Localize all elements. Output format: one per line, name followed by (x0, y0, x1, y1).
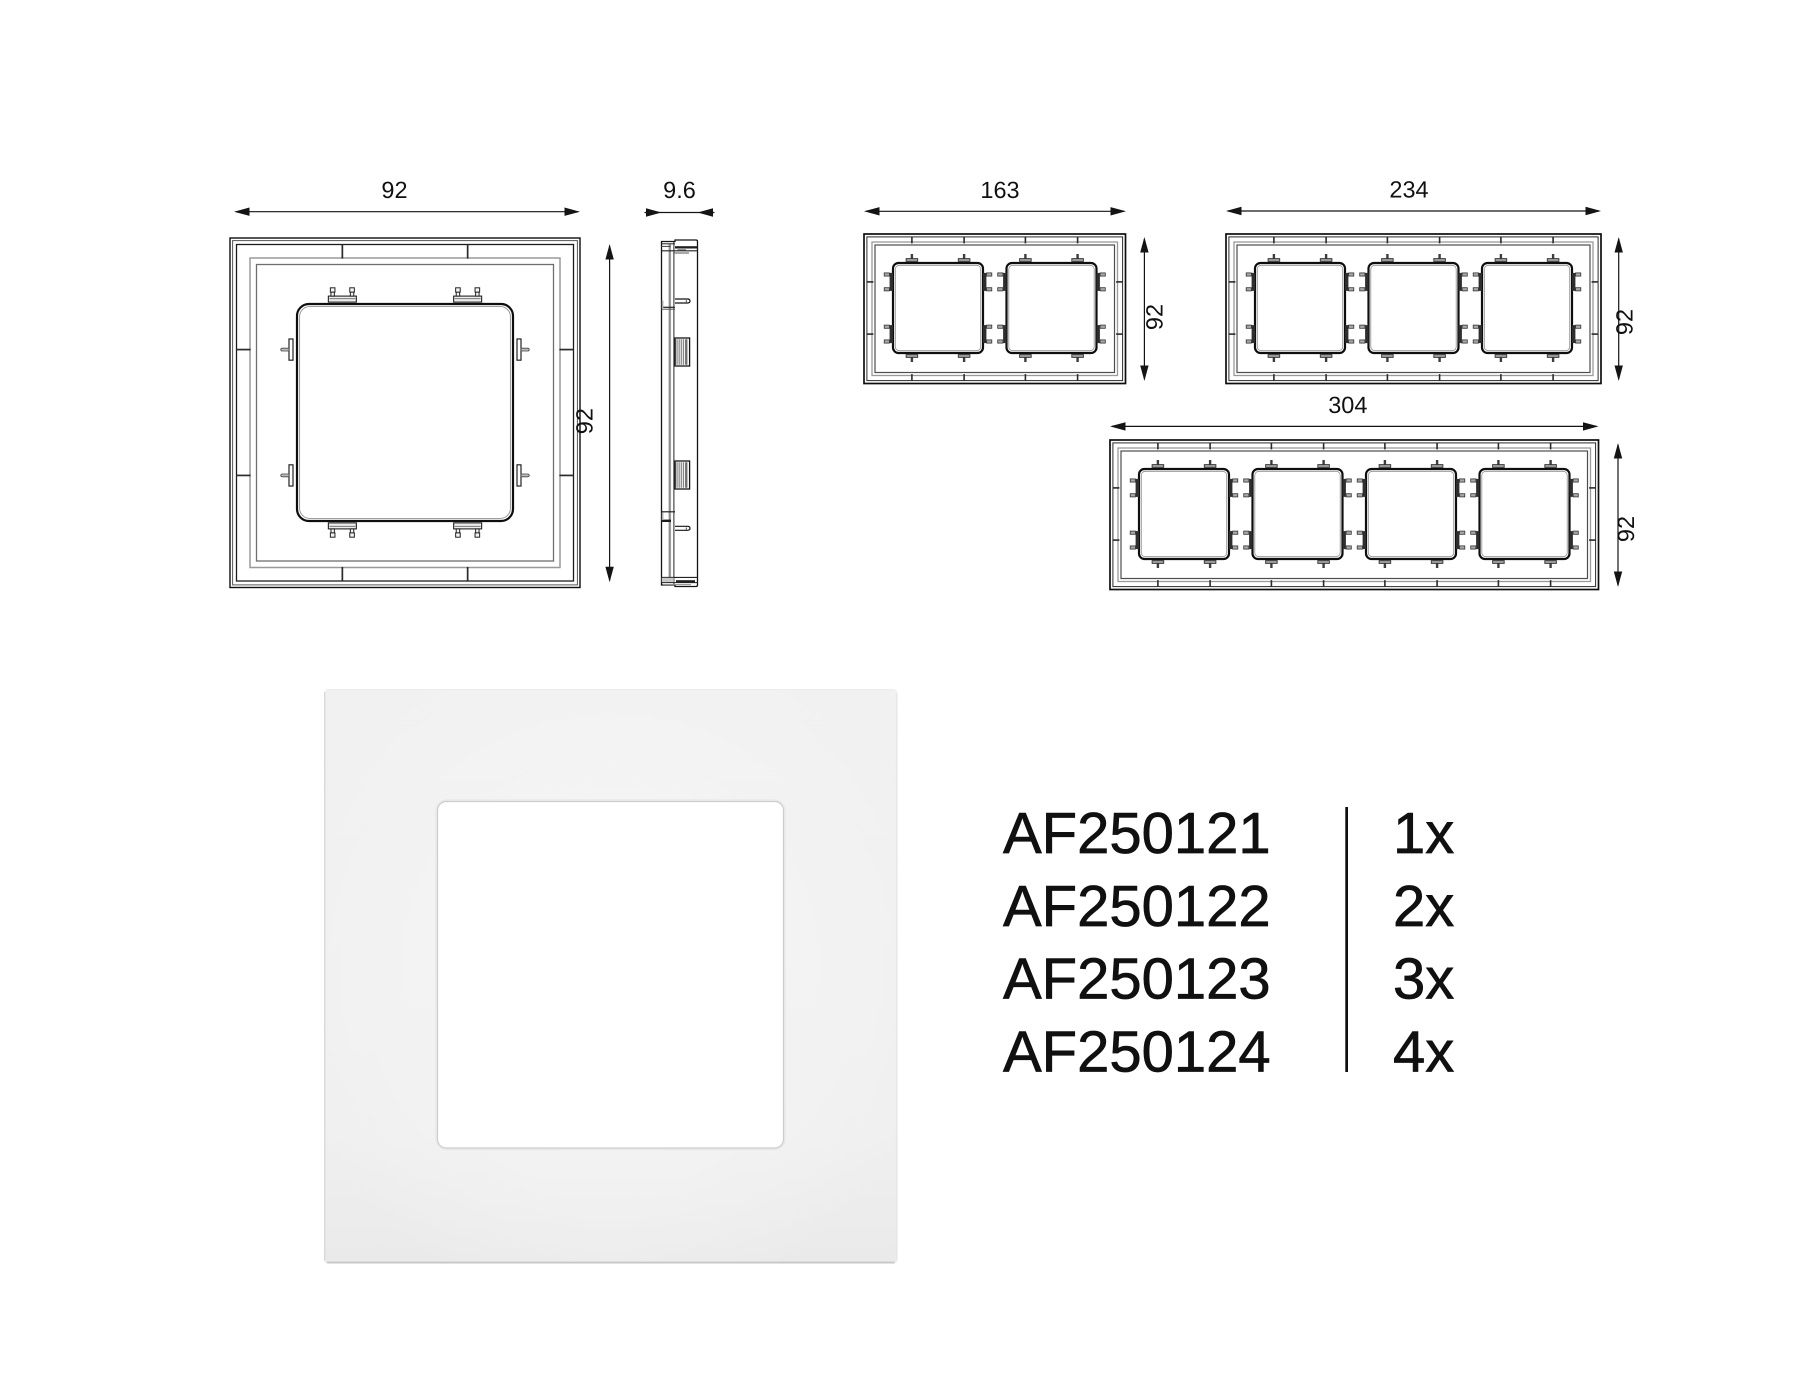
svg-text:3x: 3x (1393, 947, 1454, 1012)
svg-text:AF250121: AF250121 (1003, 801, 1271, 866)
svg-text:9.6: 9.6 (663, 177, 696, 203)
svg-text:92: 92 (1612, 309, 1638, 335)
svg-text:92: 92 (381, 177, 407, 203)
svg-text:4x: 4x (1393, 1019, 1454, 1084)
svg-text:92: 92 (1141, 304, 1167, 330)
svg-text:2x: 2x (1393, 874, 1454, 939)
svg-text:163: 163 (980, 177, 1019, 203)
svg-text:AF250124: AF250124 (1003, 1019, 1271, 1084)
svg-text:1x: 1x (1393, 801, 1454, 866)
svg-text:AF250123: AF250123 (1003, 947, 1271, 1012)
svg-text:92: 92 (572, 408, 598, 434)
svg-text:92: 92 (1613, 516, 1639, 542)
svg-text:234: 234 (1389, 177, 1428, 203)
svg-text:AF250122: AF250122 (1003, 874, 1271, 939)
svg-text:304: 304 (1328, 392, 1367, 418)
